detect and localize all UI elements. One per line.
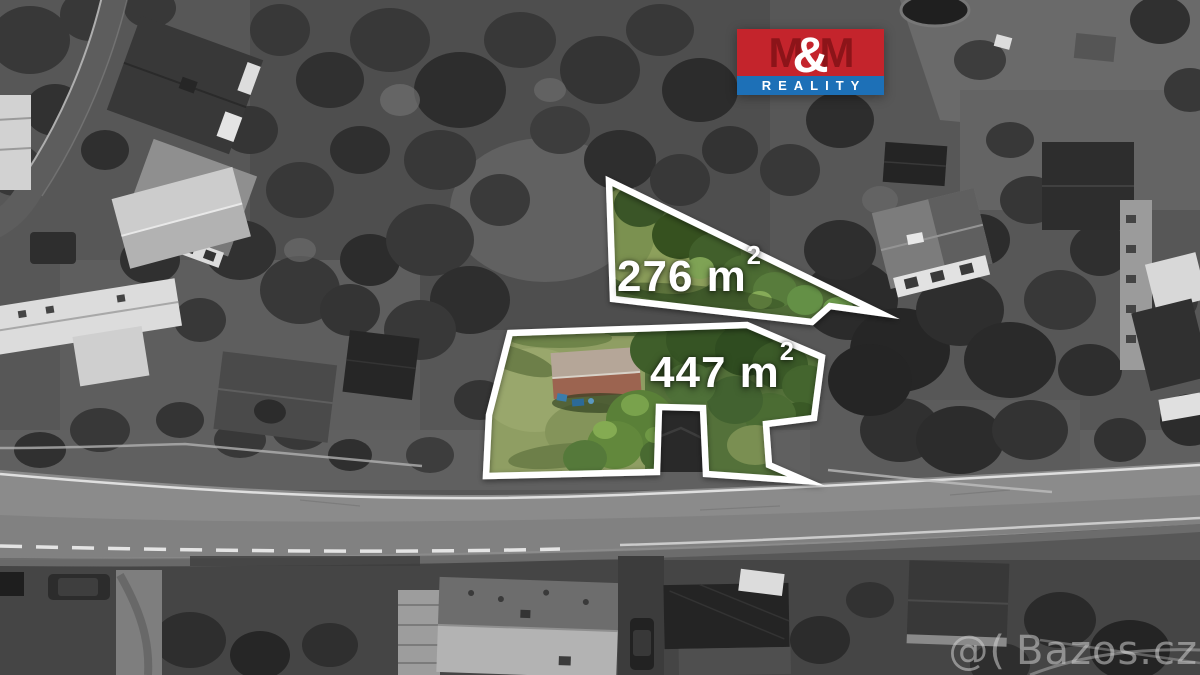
bazos-watermark: @(Bazos.cz — [948, 628, 1198, 674]
mm-reality-logo-mark: M & M — [737, 29, 884, 76]
watermark-text: Bazos.cz — [1016, 628, 1198, 674]
listing-photo: 276 m2 447 m2 M & M REALITY @(Bazos.cz — [0, 0, 1200, 675]
logo-ampersand: & — [792, 30, 828, 80]
plot-label-276: 276 m2 — [617, 252, 762, 303]
aerial-photo — [0, 0, 1200, 675]
trampoline — [30, 232, 76, 264]
plot-label-447: 447 m2 — [650, 348, 795, 399]
paved-yard-bottom — [398, 590, 440, 675]
plot-area-447: 447 m — [650, 348, 780, 397]
mm-reality-logo: M & M REALITY — [737, 29, 884, 95]
hedge-strip — [190, 556, 420, 566]
plot-area-276: 276 m — [617, 252, 747, 301]
shed-right — [883, 142, 948, 186]
plot-house — [551, 347, 642, 399]
house-gray-midleft — [213, 351, 337, 442]
house-bottom-center — [436, 577, 619, 675]
plot-area-447-sup: 2 — [780, 338, 795, 366]
notch-house — [656, 410, 706, 472]
garden-pool — [901, 0, 969, 26]
plot-area-276-sup: 2 — [747, 242, 762, 270]
driveway-bottom — [618, 556, 664, 675]
shed-black-midleft — [342, 330, 419, 400]
watermark-camera-glyph: @( — [948, 628, 1006, 674]
